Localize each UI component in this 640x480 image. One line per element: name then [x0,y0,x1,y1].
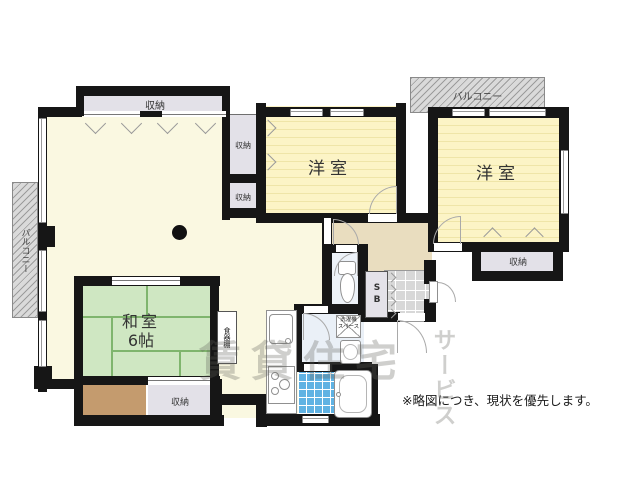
window [452,109,485,116]
faucet-icon [336,392,341,397]
window [489,109,546,116]
doorway [336,245,357,252]
western-room-right-label: 洋室 [458,160,538,182]
window [290,109,323,116]
storage-closet-1-label: 収納 [226,138,260,152]
storage-japanese-room-label: 収納 [155,394,205,408]
storage-closet-2-label: 収納 [226,190,260,204]
wall-segment [40,226,55,247]
wall-segment [74,276,83,426]
watermark-text-vertical: サービス [425,328,459,428]
structural-column [172,225,187,240]
japanese-room-label: 和室 6帖 [101,312,181,350]
window [39,320,46,367]
wood-box [80,383,146,419]
window [330,109,364,116]
storage-western-right-label: 収納 [493,254,543,268]
wall-segment [74,415,224,426]
storage-top-label: 収納 [130,96,180,112]
balcony-top-label: バルコニー [420,86,535,104]
balcony-left-label: バルコニー [14,195,36,305]
wall-segment [76,86,230,96]
plan-note: ※略図につき、現状を優先します。 [402,390,598,409]
window [561,150,568,214]
wall-segment [472,271,563,281]
doorway [324,218,331,244]
window [302,416,329,423]
sliding-door [112,277,180,285]
doorway [304,306,328,313]
floor-plan: バルコニー バルコニー 収納 収納 収納 収納 収納 食器棚 SB [0,0,640,480]
window [39,250,46,312]
window [39,118,46,223]
watermark-text: 賃貸住宅 [199,328,407,389]
doorway [368,214,397,222]
western-room-left-label: 洋室 [290,155,370,177]
wall-segment [396,103,406,223]
doorway [434,243,462,251]
front-door-leaf [429,281,438,303]
front-door-arc [438,282,456,302]
shoe-box-label: SB [368,278,386,312]
ldk-floor [44,110,230,287]
